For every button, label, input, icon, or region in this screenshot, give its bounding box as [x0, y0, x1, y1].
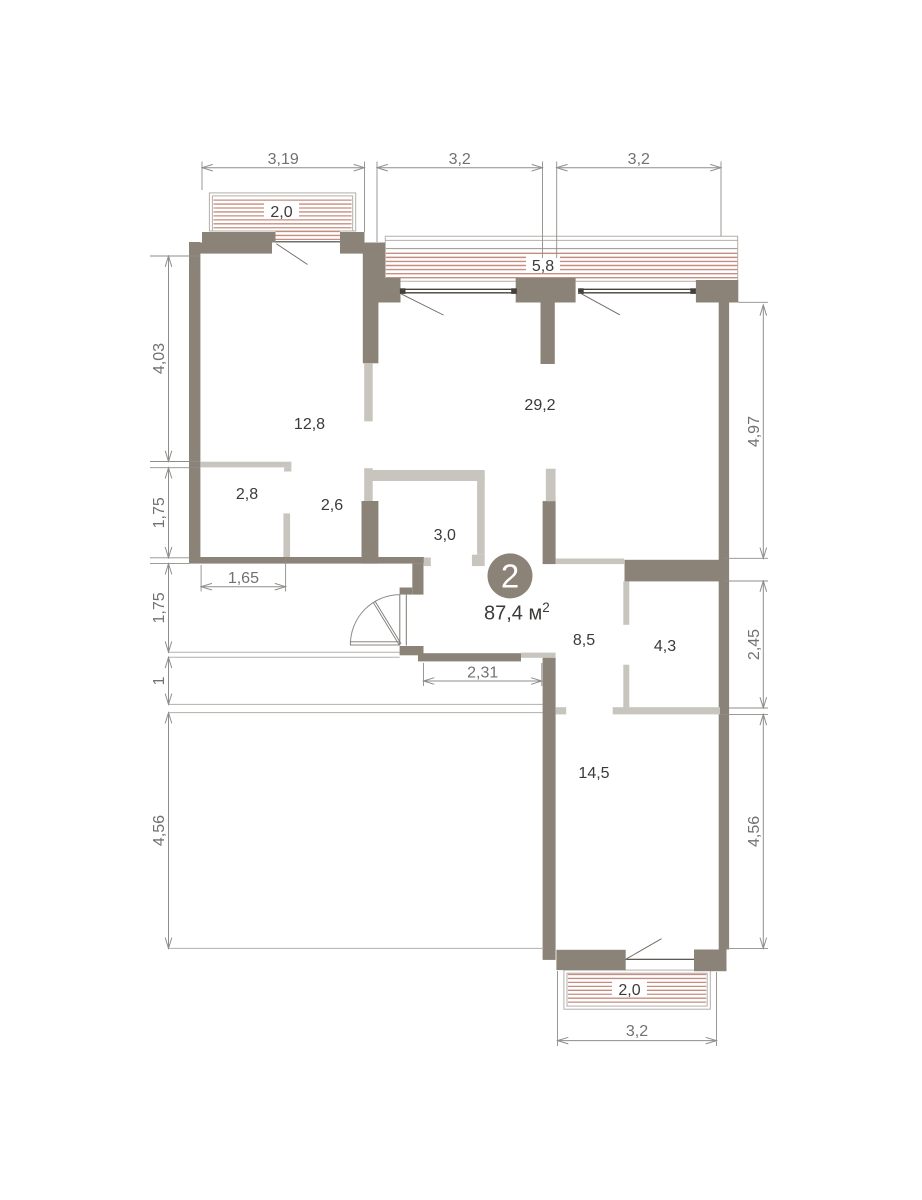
svg-text:14,5: 14,5: [578, 765, 609, 782]
svg-text:4,56: 4,56: [746, 816, 763, 847]
svg-text:1,75: 1,75: [151, 497, 168, 528]
svg-text:1,75: 1,75: [151, 592, 168, 623]
svg-text:3,2: 3,2: [628, 151, 650, 168]
svg-text:1,65: 1,65: [228, 570, 259, 587]
svg-text:4,56: 4,56: [151, 815, 168, 846]
svg-text:2,6: 2,6: [321, 497, 343, 514]
svg-text:1: 1: [151, 676, 168, 685]
svg-text:2,0: 2,0: [270, 204, 292, 221]
svg-text:3,19: 3,19: [268, 151, 299, 168]
svg-text:3,2: 3,2: [449, 151, 471, 168]
svg-text:2,45: 2,45: [746, 629, 763, 660]
svg-text:2,0: 2,0: [618, 982, 640, 999]
svg-text:3,2: 3,2: [626, 1023, 648, 1040]
svg-text:8,5: 8,5: [573, 632, 595, 649]
svg-text:4,03: 4,03: [151, 343, 168, 374]
svg-text:2: 2: [501, 558, 519, 595]
svg-text:4,3: 4,3: [654, 638, 676, 655]
svg-text:3,0: 3,0: [434, 527, 456, 544]
svg-text:29,2: 29,2: [524, 397, 555, 414]
svg-text:87,4 м2: 87,4 м2: [484, 600, 550, 625]
svg-text:5,8: 5,8: [532, 258, 554, 275]
svg-text:4,97: 4,97: [746, 416, 763, 447]
svg-text:2,31: 2,31: [467, 665, 498, 682]
svg-text:2,8: 2,8: [236, 486, 258, 503]
svg-text:12,8: 12,8: [294, 416, 325, 433]
